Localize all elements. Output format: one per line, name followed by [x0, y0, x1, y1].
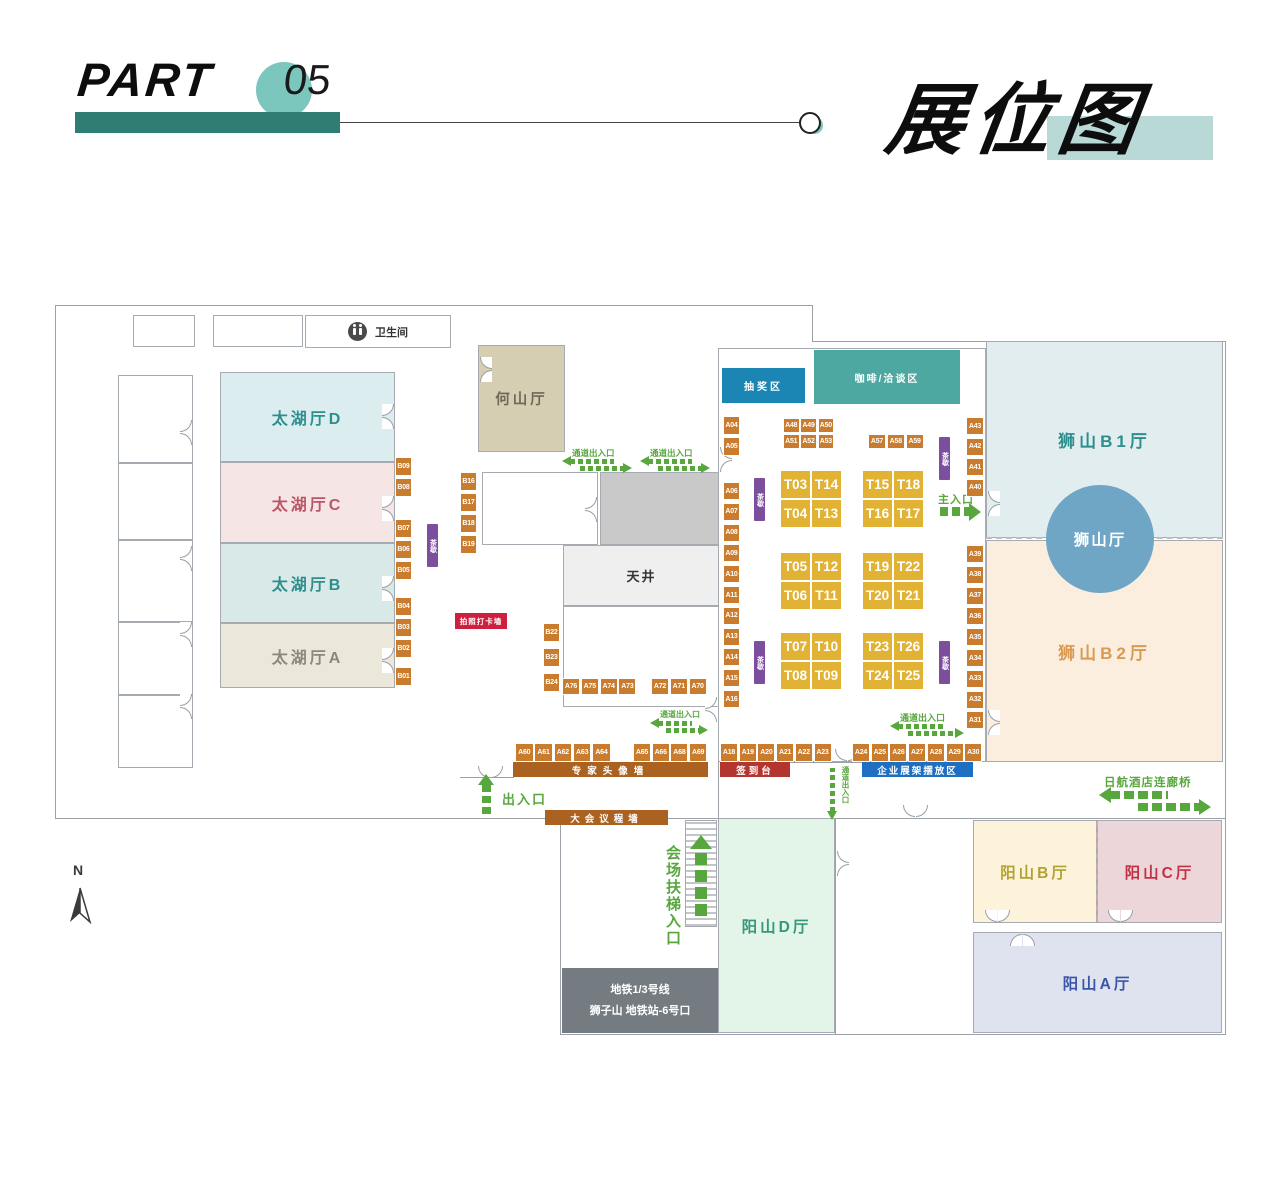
booth-b04: B04	[395, 597, 412, 616]
booth-a36: A36	[966, 607, 984, 625]
booth-t18: T18	[893, 470, 924, 499]
booth-a48: A48	[783, 418, 800, 433]
compass-n-label: N	[73, 862, 83, 878]
booth-a10: A10	[723, 565, 740, 583]
booth-a11: A11	[723, 586, 740, 604]
booth-a29: A29	[946, 743, 964, 762]
booth-b19: B19	[460, 535, 477, 554]
booth-b02: B02	[395, 639, 412, 658]
passage-arrow-left-icon	[570, 459, 614, 464]
booth-a49: A49	[800, 418, 817, 433]
booth-t26: T26	[893, 632, 924, 661]
booth-b08: B08	[395, 478, 412, 497]
booth-a07: A07	[723, 503, 740, 521]
corridor-bridge-label: 日航酒店连廊桥	[1104, 774, 1192, 790]
booth-a38: A38	[966, 566, 984, 584]
booth-t17: T17	[893, 499, 924, 528]
main-entrance-arrow-icon	[940, 507, 970, 516]
hall-taihu-a: 太湖厅A	[220, 623, 395, 688]
passage-label-top-1: 通道出入口	[572, 447, 615, 459]
door-symbol	[180, 622, 193, 648]
zone-lottery: 抽奖区	[722, 368, 805, 403]
door-symbol	[987, 491, 1000, 517]
wall-line	[718, 762, 719, 819]
booth-a57: A57	[868, 434, 886, 449]
wall-line	[560, 818, 561, 1035]
passage-arrow-left-icon	[648, 459, 692, 464]
booth-a76: A76	[562, 678, 580, 695]
main-hall	[718, 348, 986, 762]
part-number: 05	[281, 56, 333, 104]
booth-a71: A71	[670, 678, 688, 695]
booth-t19: T19	[862, 552, 893, 581]
compass: N	[62, 866, 98, 931]
booth-a42: A42	[966, 438, 984, 456]
passage-arrow-right-icon	[666, 728, 700, 733]
hall-yangshan-a: 阳山A厅	[973, 932, 1222, 1033]
escalator-up-arrow-icon	[695, 848, 707, 916]
door-symbol	[382, 404, 395, 430]
booth-a75: A75	[581, 678, 599, 695]
zone-display-rack: 企业展架摆放区	[862, 762, 973, 777]
hall-yangshan-c: 阳山C厅	[1097, 820, 1222, 923]
booth-a05: A05	[723, 437, 740, 456]
booth-a39: A39	[966, 545, 984, 563]
booth-a60: A60	[515, 743, 534, 762]
booth-t20: T20	[862, 581, 893, 610]
booth-a72: A72	[651, 678, 669, 695]
booth-tea-break: 茶歇	[427, 524, 438, 567]
door-symbol	[836, 851, 849, 877]
booth-b01: B01	[395, 667, 412, 686]
restroom-icon	[348, 322, 367, 341]
door-symbol	[985, 910, 1011, 923]
subway-line-2: 狮子山 地铁站-6号口	[590, 1001, 691, 1022]
room-mid-white	[482, 472, 598, 545]
booth-a20: A20	[757, 743, 775, 762]
booth-t07: T07	[780, 632, 811, 661]
booth-map-page: PART 05 展位图 卫生间 太湖厅D 太湖厅C 太湖厅B 太湖厅A 何山厅 …	[0, 0, 1280, 1191]
booth-a37: A37	[966, 587, 984, 605]
booth-a35: A35	[966, 628, 984, 646]
room-left-1	[118, 375, 193, 463]
door-symbol	[479, 357, 492, 383]
subway-line-1: 地铁1/3号线	[610, 980, 669, 1001]
booth-b22: B22	[543, 623, 560, 642]
booth-t08: T08	[780, 661, 811, 690]
passage-arrow-left-icon	[658, 721, 692, 726]
booth-a41: A41	[966, 458, 984, 476]
door-symbol	[1010, 933, 1036, 946]
booth-a31: A31	[966, 711, 984, 729]
booth-t05: T05	[780, 552, 811, 581]
door-symbol	[180, 694, 193, 720]
subway-box: 地铁1/3号线 狮子山 地铁站-6号口	[562, 968, 718, 1033]
door-symbol	[903, 805, 929, 818]
booth-a68: A68	[670, 743, 688, 762]
booth-b23: B23	[543, 648, 560, 667]
booth-tea-break: 茶歇	[939, 437, 950, 480]
door-symbol	[987, 710, 1000, 736]
header-accent-bar	[75, 112, 340, 133]
hall-shishan-circle: 狮山厅	[1046, 485, 1154, 593]
hall-yangshan-d: 阳山D厅	[718, 818, 835, 1033]
door-symbol	[382, 576, 395, 602]
passage-arrow-down-icon	[830, 768, 835, 812]
booth-t03: T03	[780, 470, 811, 499]
booth-a04: A04	[723, 416, 740, 435]
page-title: 展位图	[880, 58, 1154, 170]
booth-a27: A27	[908, 743, 926, 762]
booth-t21: T21	[893, 581, 924, 610]
passage-arrow-right-icon	[658, 466, 702, 471]
booth-a26: A26	[889, 743, 907, 762]
booth-a62: A62	[554, 743, 573, 762]
booth-t23: T23	[862, 632, 893, 661]
booth-t11: T11	[811, 581, 842, 610]
booth-t12: T12	[811, 552, 842, 581]
booth-a24: A24	[852, 743, 870, 762]
booth-a22: A22	[795, 743, 813, 762]
booth-a30: A30	[964, 743, 982, 762]
booth-a70: A70	[689, 678, 707, 695]
booth-a34: A34	[966, 649, 984, 667]
passage-label-bottom-left: 通道出入口	[660, 709, 700, 720]
booth-a51: A51	[783, 434, 800, 449]
booth-a52: A52	[800, 434, 817, 449]
booth-a15: A15	[723, 669, 740, 687]
booth-a59: A59	[906, 434, 924, 449]
passage-arrow-right-icon	[580, 466, 624, 471]
booth-a50: A50	[818, 418, 835, 433]
booth-tea-break: 茶歇	[754, 478, 765, 521]
passage-arrow-right-icon	[908, 731, 956, 736]
wall-line	[560, 1034, 1226, 1035]
wall-line	[812, 305, 813, 342]
booth-a43: A43	[966, 417, 984, 435]
booth-t14: T14	[811, 470, 842, 499]
hall-taihu-d: 太湖厅D	[220, 372, 395, 462]
booth-a25: A25	[871, 743, 889, 762]
door-symbol	[1108, 910, 1134, 923]
escalator-entrance-label: 会场扶梯入口	[662, 845, 683, 947]
booth-a73: A73	[618, 678, 636, 695]
booth-a64: A64	[592, 743, 611, 762]
booth-a61: A61	[534, 743, 553, 762]
booth-b18: B18	[460, 514, 477, 533]
door-symbol	[382, 648, 395, 674]
yangshan-bc-divider-dashed	[1096, 822, 1098, 921]
booth-a74: A74	[600, 678, 618, 695]
booth-t25: T25	[893, 661, 924, 690]
passage-label-bottom-right: 通道出入口	[900, 711, 945, 724]
booth-t15: T15	[862, 470, 893, 499]
door-symbol	[705, 697, 718, 723]
booth-t16: T16	[862, 499, 893, 528]
corridor-bridge-arrow-right-icon	[1138, 803, 1200, 811]
floor-plan: 卫生间 太湖厅D 太湖厅C 太湖厅B 太湖厅A 何山厅 天井 抽奖区 咖啡/洽谈…	[0, 0, 1280, 1191]
passage-label-top-2: 通道出入口	[650, 447, 693, 459]
booth-a06: A06	[723, 482, 740, 500]
booth-t24: T24	[862, 661, 893, 690]
hall-taihu-c: 太湖厅C	[220, 462, 395, 543]
booth-a18: A18	[720, 743, 738, 762]
door-symbol	[180, 420, 193, 446]
booth-a21: A21	[776, 743, 794, 762]
booth-a23: A23	[814, 743, 832, 762]
booth-a58: A58	[887, 434, 905, 449]
booth-a63: A63	[573, 743, 592, 762]
corridor-bridge-arrow-left-icon	[1110, 791, 1168, 799]
booth-t06: T06	[780, 581, 811, 610]
zone-expert-wall: 专家头像墙	[513, 762, 708, 777]
wall-line	[1225, 341, 1226, 1035]
booth-t04: T04	[780, 499, 811, 528]
booth-b05: B05	[395, 561, 412, 580]
entrance-exit-label: 出入口	[502, 789, 547, 808]
booth-a13: A13	[723, 628, 740, 646]
booth-b06: B06	[395, 540, 412, 559]
room-mid-gray	[600, 472, 720, 545]
booth-b03: B03	[395, 618, 412, 637]
zone-agenda-wall: 大会议程墙	[545, 810, 668, 825]
passage-arrow-left-icon	[898, 724, 946, 729]
booth-b16: B16	[460, 472, 477, 491]
room-top-left-2	[213, 315, 303, 347]
booth-t13: T13	[811, 499, 842, 528]
door-symbol	[382, 496, 395, 522]
booth-a66: A66	[652, 743, 670, 762]
restroom-label: 卫生间	[375, 324, 408, 340]
booth-a08: A08	[723, 524, 740, 542]
wall-line	[55, 305, 813, 306]
booth-b24: B24	[543, 673, 560, 692]
part-label: PART	[75, 52, 216, 107]
wall-line	[790, 762, 862, 763]
booth-a16: A16	[723, 690, 740, 708]
restroom-box: 卫生间	[305, 315, 451, 348]
booth-t22: T22	[893, 552, 924, 581]
wall-line	[55, 305, 56, 819]
booth-a40: A40	[966, 479, 984, 497]
booth-a19: A19	[739, 743, 757, 762]
door-symbol	[180, 546, 193, 572]
room-tianjing: 天井	[563, 545, 720, 606]
zone-signin-desk: 签到台	[720, 762, 790, 777]
booth-a69: A69	[689, 743, 707, 762]
zone-photo-wall: 拍照打卡墙	[455, 613, 507, 629]
booth-tea-break: 茶歇	[939, 641, 950, 684]
booth-b07: B07	[395, 519, 412, 538]
booth-a32: A32	[966, 691, 984, 709]
booth-a12: A12	[723, 607, 740, 625]
booth-b17: B17	[460, 493, 477, 512]
door-symbol	[585, 497, 598, 523]
booth-a09: A09	[723, 544, 740, 562]
zone-coffee: 咖啡/洽谈区	[814, 350, 960, 404]
booth-t09: T09	[811, 661, 842, 690]
booth-b09: B09	[395, 457, 412, 476]
booth-a53: A53	[818, 434, 835, 449]
entrance-exit-arrow-icon	[482, 784, 491, 814]
booth-a28: A28	[927, 743, 945, 762]
hall-taihu-b: 太湖厅B	[220, 543, 395, 623]
room-left-2	[118, 463, 193, 540]
booth-t10: T10	[811, 632, 842, 661]
passage-label-vertical: 通道出入口	[840, 766, 851, 804]
hall-yangshan-b: 阳山B厅	[973, 820, 1097, 923]
room-top-left-1	[133, 315, 195, 347]
booth-a33: A33	[966, 670, 984, 688]
booth-a14: A14	[723, 648, 740, 666]
booth-tea-break: 茶歇	[754, 641, 765, 684]
booth-a65: A65	[633, 743, 651, 762]
